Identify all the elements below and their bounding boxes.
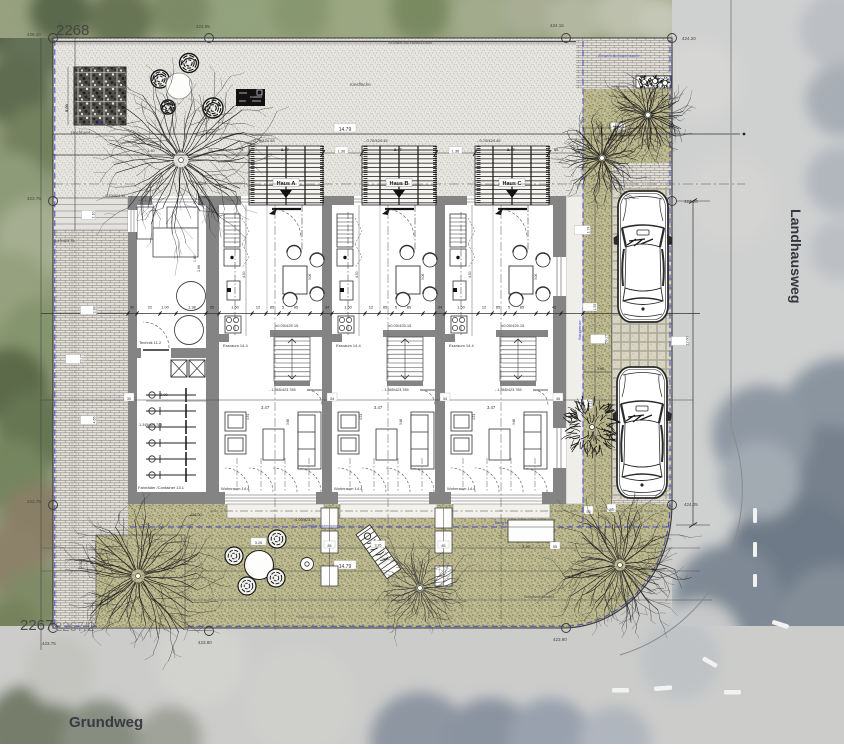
svg-text:Wohnraum 14.4: Wohnraum 14.4 bbox=[447, 486, 476, 491]
svg-text:2267: 2267 bbox=[20, 617, 53, 634]
svg-text:22: 22 bbox=[148, 306, 152, 310]
svg-text:12: 12 bbox=[482, 306, 486, 310]
svg-text:45: 45 bbox=[552, 306, 556, 310]
svg-text:19.27: 19.27 bbox=[79, 355, 83, 364]
svg-text:Landhausweg: Landhausweg bbox=[787, 209, 803, 304]
svg-text:55: 55 bbox=[586, 510, 590, 514]
svg-text:3.66: 3.66 bbox=[286, 419, 290, 425]
svg-text:423.75: 423.75 bbox=[27, 196, 41, 201]
svg-text:55: 55 bbox=[553, 545, 557, 549]
svg-text:- 1.365/423.785: - 1.365/423.785 bbox=[269, 388, 296, 392]
svg-text:1.38: 1.38 bbox=[188, 306, 195, 310]
svg-text:34: 34 bbox=[325, 306, 329, 310]
svg-text:1.36: 1.36 bbox=[452, 149, 459, 153]
svg-text:Gelände Laubengang: Gelände Laubengang bbox=[305, 524, 338, 528]
svg-text:12: 12 bbox=[256, 306, 260, 310]
svg-text:1.60: 1.60 bbox=[457, 306, 464, 310]
svg-text:424.05: 424.05 bbox=[684, 502, 698, 507]
svg-text:Wohnraum 14.4: Wohnraum 14.4 bbox=[334, 486, 363, 491]
svg-text:3.26: 3.26 bbox=[522, 544, 531, 549]
svg-text:423.80: 423.80 bbox=[198, 640, 212, 645]
svg-text:- 1.365/423.785: - 1.365/423.785 bbox=[495, 388, 522, 392]
svg-text:14.79: 14.79 bbox=[339, 127, 352, 133]
svg-text:1.00: 1.00 bbox=[161, 306, 168, 310]
svg-text:4.51: 4.51 bbox=[472, 414, 476, 420]
svg-text:2.47: 2.47 bbox=[507, 147, 516, 152]
svg-text:424.20: 424.20 bbox=[682, 36, 696, 41]
svg-text:1.66: 1.66 bbox=[197, 265, 201, 272]
svg-text:14.79: 14.79 bbox=[339, 564, 352, 570]
svg-text:Essraum 14.4: Essraum 14.4 bbox=[336, 343, 361, 348]
svg-text:3.38: 3.38 bbox=[92, 307, 96, 314]
svg-text:1.36: 1.36 bbox=[338, 149, 345, 153]
svg-text:1.40: 1.40 bbox=[147, 148, 156, 153]
svg-text:424.15: 424.15 bbox=[550, 23, 564, 28]
svg-text:3.47: 3.47 bbox=[261, 405, 270, 410]
svg-text:2.50: 2.50 bbox=[96, 120, 105, 125]
svg-text:426.10: 426.10 bbox=[27, 32, 41, 37]
svg-text:1.55: 1.55 bbox=[593, 304, 597, 311]
svg-text:85: 85 bbox=[328, 544, 332, 548]
svg-text:2.47: 2.47 bbox=[281, 147, 290, 152]
svg-text:34: 34 bbox=[443, 397, 447, 401]
svg-text:34: 34 bbox=[330, 397, 334, 401]
svg-text:3.66: 3.66 bbox=[399, 419, 403, 425]
svg-text:34: 34 bbox=[438, 306, 442, 310]
svg-text:Waldhangst. Landverteiler: Waldhangst. Landverteiler bbox=[296, 615, 336, 619]
svg-text:3.65: 3.65 bbox=[597, 367, 604, 371]
svg-text:1.60: 1.60 bbox=[231, 306, 238, 310]
svg-text:Schallschutzwand/Zaun: Schallschutzwand/Zaun bbox=[388, 40, 433, 45]
svg-text:Technik 11.2: Technik 11.2 bbox=[139, 340, 162, 345]
svg-text:- 1.00/423.75: - 1.00/423.75 bbox=[293, 518, 315, 522]
svg-text:±0.00/425.15: ±0.00/425.15 bbox=[388, 323, 412, 328]
svg-text:±0.00/425.15: ±0.00/425.15 bbox=[501, 323, 525, 328]
svg-text:424.20: 424.20 bbox=[684, 199, 698, 204]
svg-text:2.50: 2.50 bbox=[79, 561, 83, 568]
svg-text:- 0.70/424.45: - 0.70/424.45 bbox=[477, 138, 501, 143]
svg-text:1.60: 1.60 bbox=[344, 306, 351, 310]
svg-text:85: 85 bbox=[442, 544, 446, 548]
svg-text:3.47: 3.47 bbox=[374, 405, 383, 410]
svg-text:45: 45 bbox=[556, 397, 560, 401]
svg-text:85: 85 bbox=[270, 306, 274, 310]
svg-text:4.50: 4.50 bbox=[242, 271, 246, 278]
svg-text:65: 65 bbox=[210, 306, 214, 310]
svg-text:- 0.70/424.45: - 0.70/424.45 bbox=[364, 138, 388, 143]
svg-text:423.90: 423.90 bbox=[553, 637, 567, 642]
svg-text:5: 5 bbox=[282, 306, 284, 310]
svg-text:Essraum 14.4: Essraum 14.4 bbox=[449, 343, 474, 348]
svg-text:Grundweg: Grundweg bbox=[69, 714, 143, 731]
svg-text:1.66: 1.66 bbox=[193, 255, 197, 262]
svg-text:Schallschutzwand: Schallschutzwand bbox=[524, 595, 554, 599]
svg-text:4.65: 4.65 bbox=[92, 417, 96, 424]
svg-text:5: 5 bbox=[395, 306, 397, 310]
svg-text:1.74: 1.74 bbox=[586, 227, 590, 234]
svg-text:424.85: 424.85 bbox=[196, 24, 210, 29]
svg-text:3.26: 3.26 bbox=[255, 541, 262, 545]
svg-text:2268: 2268 bbox=[56, 22, 89, 39]
svg-text:Zement-Bordsteinkante: Zement-Bordsteinkante bbox=[598, 53, 640, 58]
svg-text:30: 30 bbox=[127, 397, 131, 401]
svg-text:85: 85 bbox=[520, 306, 524, 310]
svg-text:4.50: 4.50 bbox=[468, 271, 472, 278]
svg-text:4.50: 4.50 bbox=[355, 271, 359, 278]
svg-text:Kiesfläche: Kiesfläche bbox=[350, 82, 371, 87]
svg-text:3.47: 3.47 bbox=[487, 405, 496, 410]
svg-text:3.06: 3.06 bbox=[308, 274, 312, 280]
svg-text:85: 85 bbox=[294, 306, 298, 310]
svg-text:55: 55 bbox=[554, 148, 558, 152]
svg-text:423.75: 423.75 bbox=[27, 499, 41, 504]
svg-text:Essraum 14.4: Essraum 14.4 bbox=[223, 343, 248, 348]
svg-text:59.27: 59.27 bbox=[604, 335, 608, 344]
svg-text:30: 30 bbox=[130, 306, 134, 310]
svg-text:85: 85 bbox=[383, 306, 387, 310]
svg-text:3.26: 3.26 bbox=[375, 543, 382, 547]
svg-text:1.10: 1.10 bbox=[91, 212, 95, 219]
svg-text:2.80: 2.80 bbox=[160, 392, 169, 397]
svg-text:85: 85 bbox=[407, 306, 411, 310]
svg-text:3.06: 3.06 bbox=[534, 274, 538, 280]
svg-text:3.06: 3.06 bbox=[421, 274, 425, 280]
svg-text:Baugrenze: Baugrenze bbox=[577, 320, 582, 340]
svg-text:-1.49/423.75: -1.49/423.75 bbox=[53, 239, 74, 243]
svg-text:2.47: 2.47 bbox=[394, 147, 403, 152]
svg-text:- 1.365/423.785: - 1.365/423.785 bbox=[382, 388, 409, 392]
svg-text:12.00: 12.00 bbox=[685, 337, 689, 346]
svg-text:12: 12 bbox=[369, 306, 373, 310]
svg-text:4.51: 4.51 bbox=[246, 414, 250, 420]
svg-text:4.51: 4.51 bbox=[359, 414, 363, 420]
svg-text:3.66: 3.66 bbox=[512, 419, 516, 425]
svg-text:5: 5 bbox=[508, 306, 510, 310]
svg-text:Fahrräder /Container 13.1: Fahrräder /Container 13.1 bbox=[138, 485, 185, 490]
svg-text:85: 85 bbox=[496, 306, 500, 310]
svg-text:±0.00/425.15: ±0.00/425.15 bbox=[275, 323, 299, 328]
svg-text:Wohnraum 14.4: Wohnraum 14.4 bbox=[221, 486, 250, 491]
svg-text:-1.345/423.785: -1.345/423.785 bbox=[138, 423, 162, 427]
svg-text:423.75: 423.75 bbox=[42, 641, 56, 646]
